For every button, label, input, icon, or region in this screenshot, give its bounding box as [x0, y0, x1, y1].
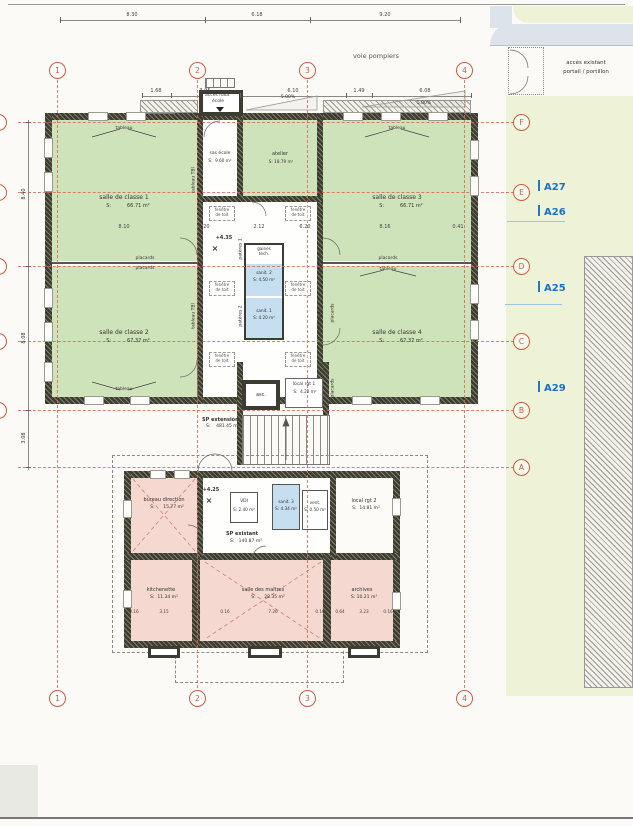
skylight-box: fenêtre de toit [209, 206, 235, 221]
sp-extension-name: SP extension [202, 417, 239, 423]
room-local2-area: S: 14.81 m² [352, 506, 380, 512]
room-vdi-name: VDI [240, 499, 248, 505]
dim-roof-2: 6.10 [287, 88, 298, 94]
ref-a25: A25 [544, 283, 566, 296]
dim-tick [471, 93, 472, 98]
dim-lower-8: 0.16 [383, 609, 392, 614]
grid-bubble-row-b: B [513, 402, 530, 419]
pateres-4-label: patères 4 [318, 311, 323, 332]
skylight-box: fenêtre de toit [285, 206, 311, 221]
pateres-2-label: patères 2 [239, 305, 244, 326]
dim-left-1: 8.08 [21, 332, 27, 343]
grid-bubble-row-d: D [513, 258, 530, 275]
room-local1-area: S: 4.22 m² [293, 389, 316, 394]
dim-top-1: 6.18 [251, 12, 262, 18]
pateres-1-label: patères 1 [239, 238, 244, 259]
dim-tick [205, 17, 206, 23]
dim-lower-0: 0.16 [129, 609, 138, 614]
dim-tick [26, 266, 31, 267]
level-upper-mark-icon: × [212, 244, 219, 254]
room-sanit2-name: sanit. 2 [256, 270, 272, 275]
placards-label-vert-1: placards [331, 303, 336, 322]
room-sas-area: S: 9.60 m² [208, 158, 231, 163]
drawing-annotations-overlay [0, 0, 633, 826]
room-bureau-name: bureau direction [143, 497, 184, 503]
dim-tick [171, 93, 172, 98]
acces-haut-label-1: accès haut [205, 93, 229, 99]
dim-tick [460, 17, 461, 23]
grid-bubble-row-e: E [513, 184, 530, 201]
skylight-box: fenêtre de toit [285, 281, 311, 296]
dim-lower-2: 0.64 [191, 609, 200, 614]
dim-lower-1: 3.15 [159, 609, 168, 614]
acces-existant-label-2: portail / portillon [563, 69, 609, 76]
acces-existant-label-1: accès existant [566, 60, 606, 67]
dim-mid-3: 6.20 [299, 224, 310, 230]
dim-lower-3: 0.16 [220, 609, 229, 614]
room-classe4-name: salle de classe 4 [372, 329, 421, 337]
sp-existant-area: S: 140.87 m² [230, 539, 262, 545]
grid-bubble-col-4-top: 4 [456, 62, 473, 79]
placards-label-vert-2: placards [331, 378, 336, 397]
tableau-label-c1: tableau [115, 126, 132, 132]
room-local2-name: local rgt 2 [351, 498, 376, 504]
dim-top-2: 9.20 [379, 12, 390, 18]
ref-a27: A27 [544, 182, 566, 195]
dim-tick [26, 467, 31, 468]
grid-bubble-col-2-top: 2 [189, 62, 206, 79]
room-sanit1-name: sanit. 1 [256, 308, 272, 313]
grid-bubble-row-c: C [513, 333, 530, 350]
room-classe2-name: salle de classe 2 [99, 329, 148, 337]
grid-bubble-col-1-bottom: 1 [49, 690, 66, 707]
dim-lower-6: 0.64 [335, 609, 344, 614]
room-gaines-name: gaines tech. [257, 246, 271, 257]
ref-a29: A29 [544, 383, 566, 396]
grid-bubble-col-3-bottom: 3 [299, 690, 316, 707]
room-kitchenette-name: kitchenette [147, 587, 175, 593]
pateres-3-label-vert: patères 3 [318, 252, 323, 273]
dim-tick [310, 17, 311, 23]
room-bureau-area: S: 15.77 m² [150, 505, 183, 511]
room-kitchenette-area: S: 11.34 m² [150, 595, 178, 601]
skylight-box: fenêtre de toit [285, 352, 311, 367]
room-classe3-name: salle de classe 3 [372, 194, 421, 202]
level-lower: +4.25 [203, 487, 220, 493]
room-maitres-area: S: 28.35 m² [251, 595, 284, 601]
acces-haut-label-2: école [212, 99, 224, 105]
floor-plan-page: voie pompiers accès existant portail / p… [0, 0, 633, 826]
skylight-box: fenêtre de toit [209, 281, 235, 296]
room-classe4-area: S: 67.37 m² [379, 338, 423, 344]
dim-roof-0: 1.68 [150, 88, 161, 94]
dim-mid-1: 6.20 [198, 224, 209, 230]
grid-bubble-col-3-top: 3 [299, 62, 316, 79]
room-classe3-area: S: 66.71 m² [379, 203, 423, 209]
dim-tick [346, 93, 347, 98]
dim-left-2: 3.08 [21, 432, 27, 443]
ref-a26: A26 [544, 207, 566, 220]
room-sas-name: sas école [210, 151, 231, 157]
sp-existant-name: SP existant [226, 531, 258, 537]
placards-label-left-2: placards [135, 266, 154, 272]
dim-left-0: 8.40 [21, 188, 27, 199]
dim-tick [60, 17, 61, 23]
pateres-3-label: patères 3 [265, 197, 286, 203]
dim-tick [372, 93, 373, 98]
room-vent-area: S: 0.50 m² [304, 507, 326, 512]
room-classe2-area: S: 67.37 m² [106, 338, 150, 344]
ref-underline-a26 [507, 221, 565, 222]
ref-tick-a27 [538, 180, 540, 191]
tableau-label-c2: tableau [115, 387, 132, 393]
room-classe1-name: salle de classe 1 [99, 194, 148, 202]
dim-roof-3: 1.49 [353, 88, 364, 94]
room-classe1-area: S: 66.71 m² [106, 203, 150, 209]
dim-mid-5: 0.41 [452, 224, 463, 230]
dim-mid-2: 2.12 [253, 224, 264, 230]
placards-label-left-1: placards [135, 256, 154, 262]
grid-bubble-col-2-bottom: 2 [189, 690, 206, 707]
slope-label-1: 5.00% [281, 95, 295, 101]
room-vent-name: vent. [310, 500, 321, 505]
room-atelier-name: atelier [272, 151, 288, 157]
level-upper: +4.35 [216, 235, 233, 241]
slope-label-2: 5.00% [417, 101, 431, 107]
dim-lower-4: 7.26 [268, 609, 277, 614]
dim-mid-4: 8.16 [379, 224, 390, 230]
entry-arrow-icon [216, 107, 224, 112]
dim-top-0: 8.30 [126, 12, 137, 18]
dim-tick [142, 93, 143, 98]
dim-roof-4: 6.08 [419, 88, 430, 94]
grid-bubble-row-a: A [513, 459, 530, 476]
skylight-box: fenêtre de toit [209, 352, 235, 367]
room-sanit3-name: sanit. 3 [278, 499, 294, 504]
ref-underline-a25 [505, 304, 562, 305]
room-sanit2-area: S: 4.50 m² [253, 277, 275, 282]
dim-tick [26, 122, 31, 123]
ref-tick-a29 [538, 381, 540, 392]
room-sanit1-area: S: 4.20 m² [253, 315, 275, 320]
elevator-label: asc. [256, 392, 266, 398]
ref-tick-a25 [538, 281, 540, 292]
tableau-tbi-label-2: tableau TBI [192, 303, 197, 329]
tableau-tbi-label-3: tableau TBI [318, 170, 323, 196]
dim-lower-5: 0.16 [315, 609, 324, 614]
room-archives-name: archives [352, 587, 373, 593]
grid-bubble-col-4-bottom: 4 [456, 690, 473, 707]
level-lower-mark-icon: × [206, 496, 213, 506]
grid-bubble-row-f: F [513, 114, 530, 131]
grid-bubble-col-1-top: 1 [49, 62, 66, 79]
room-atelier-area: S: 18.79 m² [269, 159, 293, 164]
ref-tick-a26 [538, 205, 540, 216]
room-local1-name: local rgt 1 [293, 382, 316, 388]
tableau-tbi-label-1: tableau TBI [192, 167, 197, 193]
sp-extension-area: S: 481.45 m² [206, 424, 239, 430]
dim-tick [240, 93, 241, 98]
tableau-label-c3: tableau [388, 126, 405, 132]
room-vdi-area: S: 2.40 m² [233, 507, 255, 512]
room-sanit3-area: S: 4.34 m² [275, 506, 297, 511]
tableau-label-c4: tableau [379, 267, 396, 273]
voie-pompiers-label: voie pompiers [353, 52, 399, 60]
dim-tick [26, 410, 31, 411]
room-maitres-name: salle des maîtres [242, 587, 284, 593]
dim-lower-7: 3.23 [359, 609, 368, 614]
room-archives-area: S: 10.21 m² [351, 595, 377, 601]
placards-label-right: placards [378, 256, 397, 262]
dim-mid-0: 8.10 [118, 224, 129, 230]
